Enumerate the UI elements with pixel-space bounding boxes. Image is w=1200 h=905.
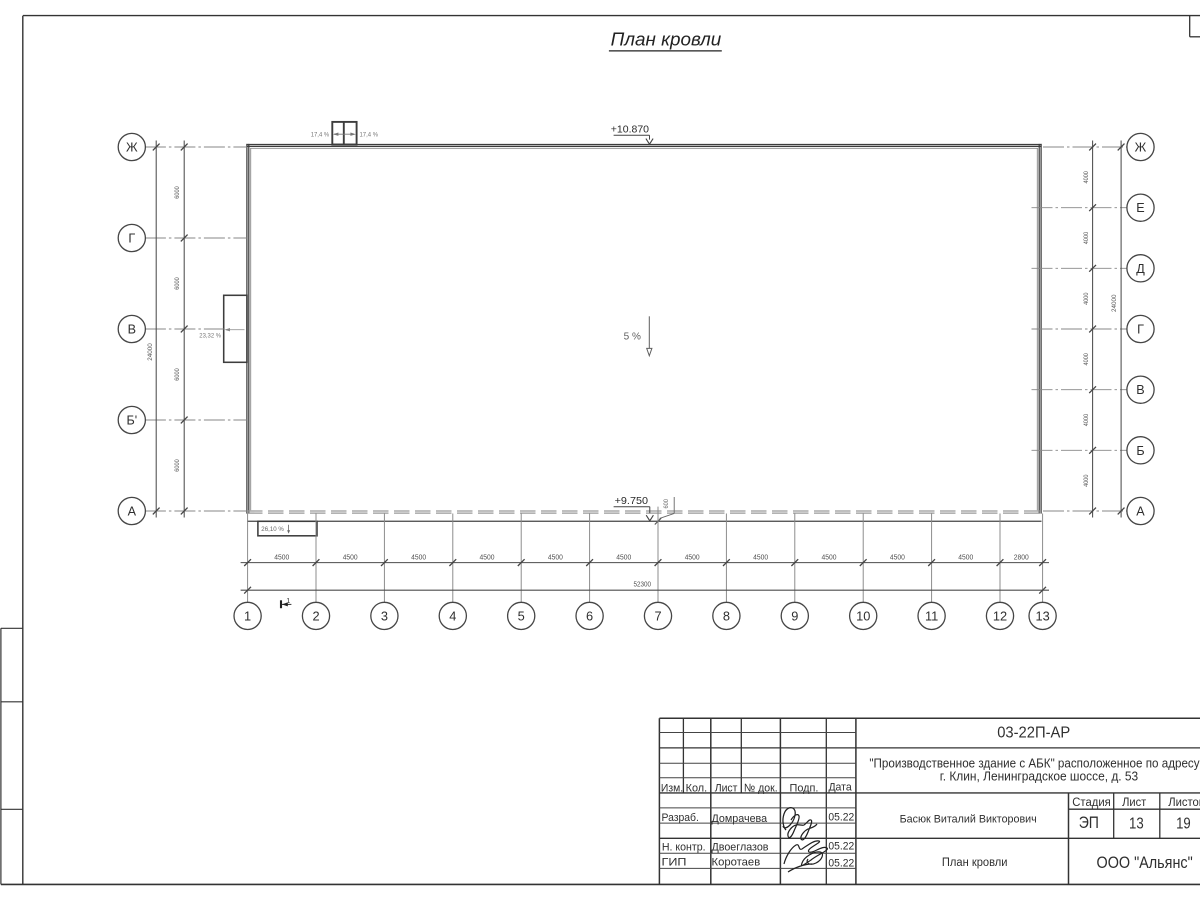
svg-text:Двоеглазов: Двоеглазов bbox=[712, 841, 769, 853]
svg-text:Лист: Лист bbox=[1122, 797, 1147, 809]
svg-text:Басюк Виталий Викторович: Басюк Виталий Викторович bbox=[900, 814, 1037, 826]
svg-text:Г: Г bbox=[1137, 323, 1144, 337]
svg-text:4500: 4500 bbox=[480, 554, 495, 561]
svg-text:1: 1 bbox=[286, 596, 290, 605]
svg-text:А: А bbox=[128, 505, 137, 519]
svg-text:4500: 4500 bbox=[685, 554, 700, 561]
svg-text:5 %: 5 % bbox=[624, 330, 641, 342]
svg-text:Стадия: Стадия bbox=[1072, 797, 1111, 809]
svg-text:г. Клин, Ленинградское шоссе,: г. Клин, Ленинградское шоссе, д. 53 bbox=[940, 769, 1138, 784]
svg-text:26,10 %: 26,10 % bbox=[261, 526, 284, 533]
svg-text:5: 5 bbox=[518, 608, 525, 623]
svg-text:Коротаев: Коротаев bbox=[712, 857, 761, 869]
svg-text:Г: Г bbox=[128, 232, 135, 246]
svg-text:Ж: Ж bbox=[1135, 141, 1147, 155]
svg-text:24000: 24000 bbox=[1111, 294, 1118, 312]
svg-text:05.22: 05.22 bbox=[828, 840, 854, 852]
svg-text:05.22: 05.22 bbox=[828, 858, 854, 870]
svg-text:13: 13 bbox=[1035, 608, 1049, 623]
svg-text:ГИП: ГИП bbox=[662, 857, 687, 869]
svg-text:13: 13 bbox=[1129, 816, 1144, 833]
svg-text:Е: Е bbox=[1136, 201, 1144, 215]
svg-text:4500: 4500 bbox=[958, 554, 973, 561]
svg-text:В: В bbox=[128, 323, 136, 337]
svg-text:4500: 4500 bbox=[753, 554, 768, 561]
svg-text:2: 2 bbox=[312, 608, 319, 623]
svg-text:Кол.: Кол. bbox=[686, 782, 708, 794]
svg-text:24000: 24000 bbox=[147, 343, 154, 361]
svg-text:4000: 4000 bbox=[1083, 232, 1090, 245]
svg-text:4: 4 bbox=[449, 608, 456, 623]
svg-text:23,32 %: 23,32 % bbox=[199, 333, 221, 340]
svg-text:Изм.: Изм. bbox=[661, 782, 683, 794]
svg-text:6000: 6000 bbox=[174, 459, 181, 472]
svg-text:+9.750: +9.750 bbox=[615, 496, 649, 507]
svg-text:ООО "Альянс": ООО "Альянс" bbox=[1097, 854, 1193, 872]
svg-text:Листов: Листов bbox=[1168, 797, 1200, 809]
svg-text:Ж: Ж bbox=[126, 141, 138, 155]
svg-text:52300: 52300 bbox=[634, 582, 652, 589]
svg-text:В: В bbox=[1136, 383, 1144, 397]
svg-text:4500: 4500 bbox=[274, 554, 289, 561]
svg-text:Н. контр.: Н. контр. bbox=[662, 841, 706, 853]
svg-text:11: 11 bbox=[925, 608, 938, 623]
svg-text:4500: 4500 bbox=[890, 554, 905, 561]
svg-text:+10.870: +10.870 bbox=[611, 124, 649, 135]
svg-text:4000: 4000 bbox=[1083, 171, 1090, 184]
svg-text:12: 12 bbox=[993, 608, 1007, 623]
svg-text:Дата: Дата bbox=[828, 782, 852, 794]
svg-text:6000: 6000 bbox=[174, 186, 181, 199]
svg-text:4500: 4500 bbox=[411, 554, 426, 561]
svg-text:Разраб.: Разраб. bbox=[662, 812, 699, 824]
svg-text:4500: 4500 bbox=[548, 554, 563, 561]
svg-text:1: 1 bbox=[244, 608, 251, 623]
svg-text:Лист: Лист bbox=[715, 782, 738, 794]
svg-text:17,4 %: 17,4 % bbox=[360, 132, 379, 139]
svg-text:Д: Д bbox=[1136, 262, 1145, 276]
svg-text:4000: 4000 bbox=[1083, 414, 1090, 427]
svg-text:4000: 4000 bbox=[1083, 353, 1090, 366]
svg-text:План кровли: План кровли bbox=[611, 29, 722, 50]
svg-text:03-22П-АР: 03-22П-АР bbox=[997, 724, 1070, 741]
svg-text:9: 9 bbox=[791, 608, 798, 623]
svg-text:4000: 4000 bbox=[1083, 474, 1090, 487]
svg-text:05.22: 05.22 bbox=[828, 812, 854, 824]
svg-text:8: 8 bbox=[723, 608, 730, 623]
svg-text:Домрачева: Домрачева bbox=[712, 813, 768, 825]
svg-text:4000: 4000 bbox=[1083, 292, 1090, 305]
svg-text:Б: Б bbox=[1136, 444, 1144, 458]
svg-text:3: 3 bbox=[381, 608, 388, 623]
svg-text:17,4 %: 17,4 % bbox=[311, 132, 330, 139]
svg-text:4500: 4500 bbox=[616, 554, 631, 561]
svg-text:600: 600 bbox=[663, 499, 670, 509]
svg-text:План кровли: План кровли bbox=[942, 857, 1008, 869]
svg-text:6000: 6000 bbox=[174, 277, 181, 290]
svg-text:7: 7 bbox=[654, 608, 661, 623]
svg-text:6: 6 bbox=[586, 608, 593, 623]
svg-text:4500: 4500 bbox=[822, 554, 837, 561]
svg-text:19: 19 bbox=[1176, 816, 1191, 833]
svg-text:№ док.: № док. bbox=[744, 782, 778, 794]
svg-text:6000: 6000 bbox=[174, 368, 181, 381]
svg-text:ЭП: ЭП bbox=[1079, 813, 1099, 832]
svg-text:Подп.: Подп. bbox=[790, 782, 819, 794]
svg-text:А: А bbox=[1136, 505, 1145, 519]
svg-text:2800: 2800 bbox=[1014, 554, 1029, 561]
svg-text:Б': Б' bbox=[126, 414, 137, 428]
svg-text:4500: 4500 bbox=[343, 554, 358, 561]
svg-text:10: 10 bbox=[856, 608, 870, 623]
